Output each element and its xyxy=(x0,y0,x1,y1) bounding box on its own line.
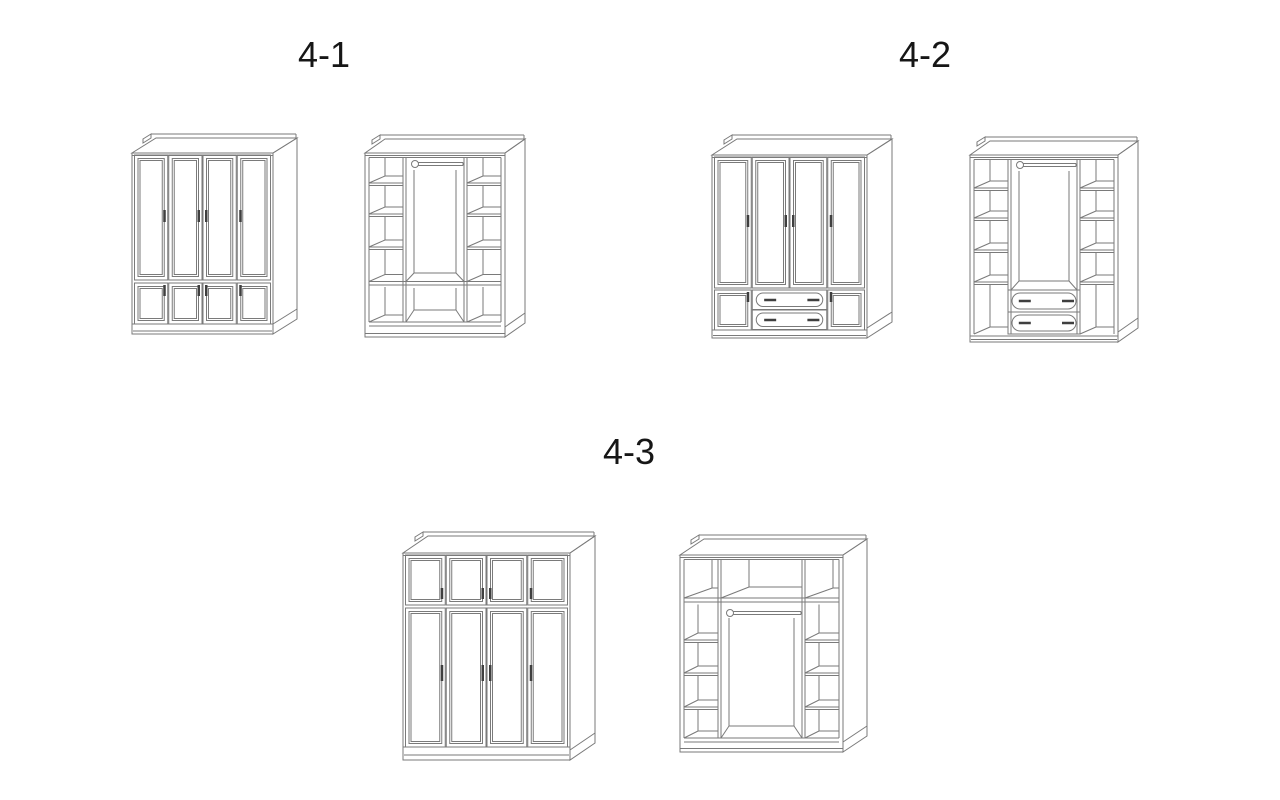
figure-group-label-4-1: 4-1 xyxy=(298,34,350,76)
wardrobe-4-1-interior-drawing xyxy=(358,130,534,344)
figure-group-label-4-3: 4-3 xyxy=(603,431,655,473)
figure-group-label-4-2: 4-2 xyxy=(899,34,951,76)
furniture-catalog-page: 4-1 4-2 4-3 xyxy=(0,0,1280,800)
wardrobe-4-3-interior-drawing xyxy=(673,530,875,759)
wardrobe-4-3-exterior-drawing xyxy=(396,528,604,767)
wardrobe-4-1-exterior-drawing xyxy=(125,128,305,340)
wardrobe-4-2-interior-drawing xyxy=(963,132,1147,349)
wardrobe-4-2-exterior-drawing xyxy=(705,130,901,345)
